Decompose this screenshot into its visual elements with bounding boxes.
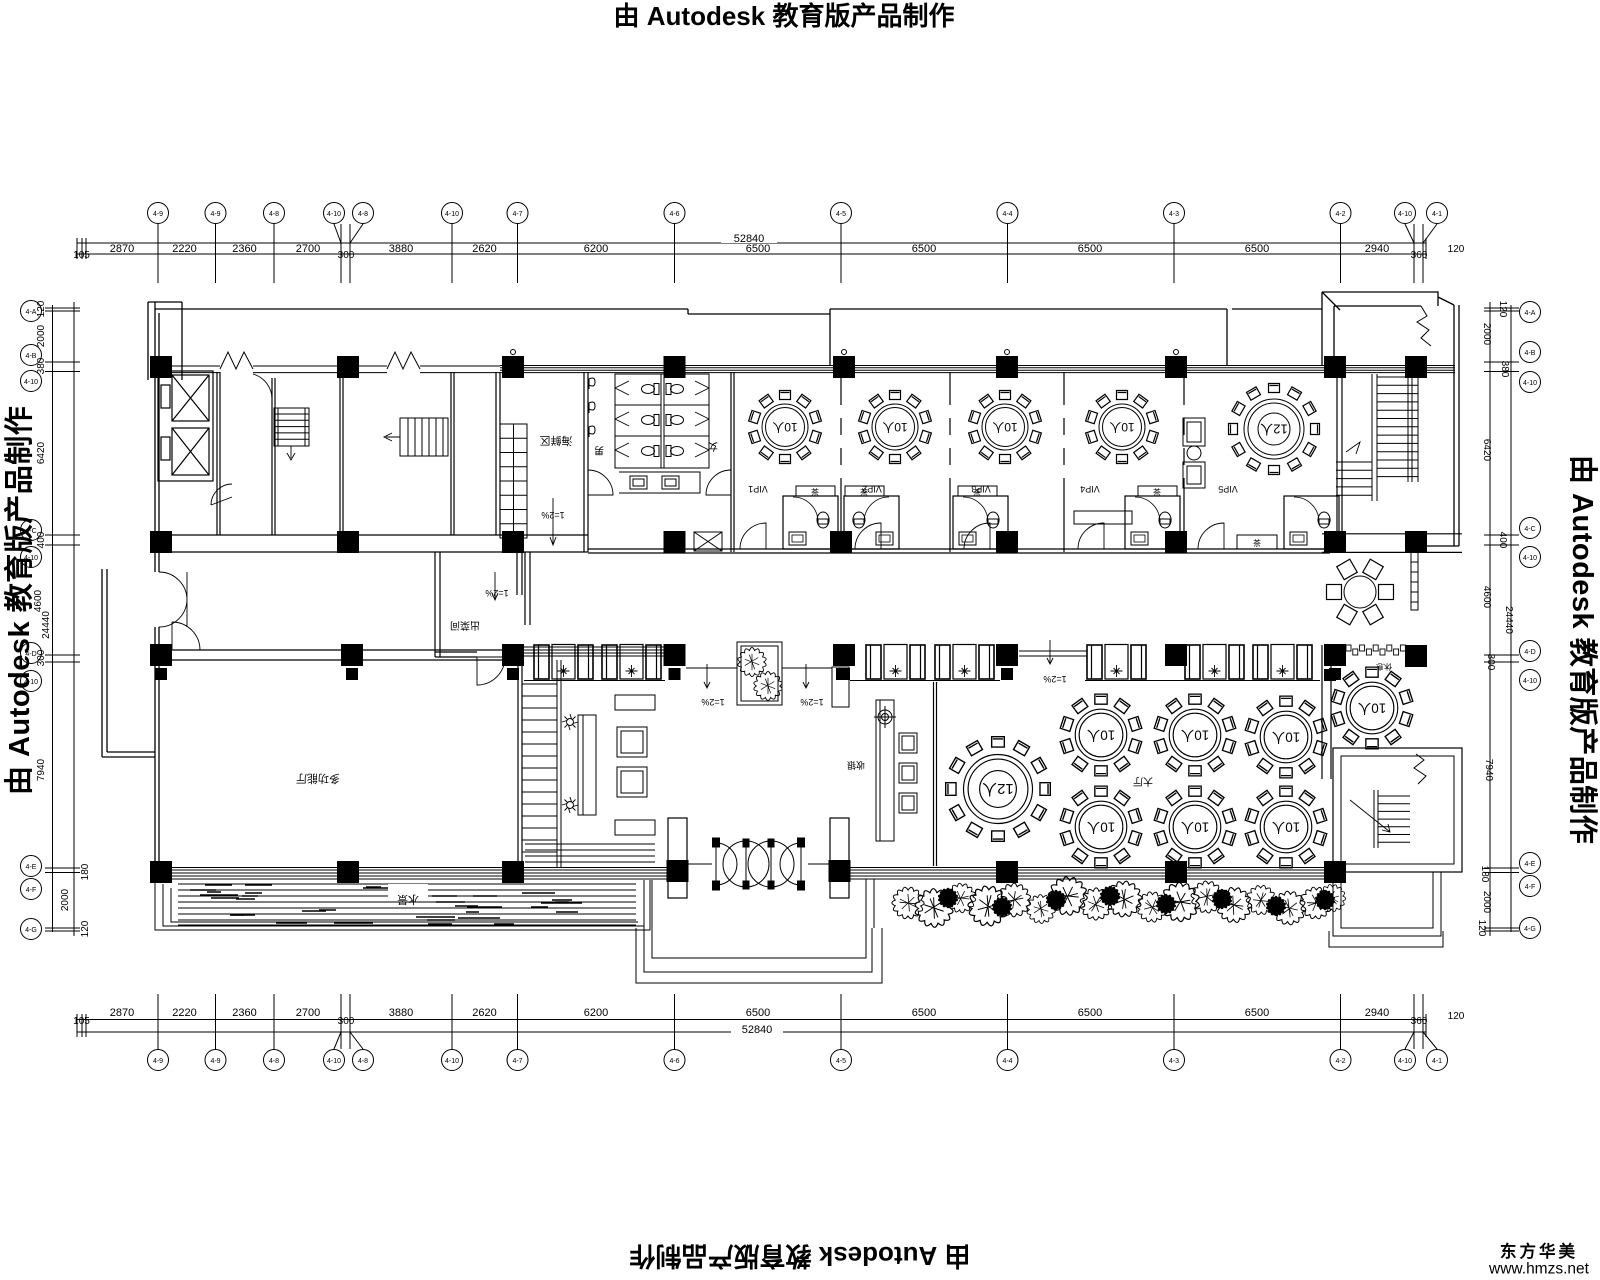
svg-text:www.hmzs.net: www.hmzs.net: [1488, 1261, 1590, 1278]
svg-text:4-10: 4-10: [24, 379, 38, 386]
svg-text:4-10: 4-10: [1523, 678, 1537, 685]
svg-text:24440: 24440: [41, 611, 52, 639]
svg-text:4-4: 4-4: [1002, 1058, 1012, 1065]
svg-text:6500: 6500: [912, 243, 936, 255]
svg-text:180: 180: [1479, 866, 1490, 883]
svg-text:4-3: 4-3: [1169, 211, 1179, 218]
svg-text:360: 360: [1411, 250, 1428, 261]
svg-text:2220: 2220: [172, 1007, 196, 1019]
svg-text:4-8: 4-8: [269, 1058, 279, 1065]
svg-text:4-5: 4-5: [836, 1058, 846, 1065]
svg-text:300: 300: [338, 1016, 355, 1027]
svg-text:4-10: 4-10: [327, 1058, 341, 1065]
svg-text:4-3: 4-3: [1169, 1058, 1179, 1065]
svg-text:由 Autodesk 教育版产品制作: 由 Autodesk 教育版产品制作: [630, 1241, 971, 1271]
svg-text:4-10: 4-10: [327, 211, 341, 218]
svg-text:2620: 2620: [472, 1007, 496, 1019]
svg-text:4-G: 4-G: [25, 927, 37, 934]
svg-text:4-1: 4-1: [1432, 1058, 1442, 1065]
svg-text:7940: 7940: [1483, 759, 1494, 782]
svg-text:4600: 4600: [1481, 586, 1492, 609]
svg-text:4-D: 4-D: [1524, 649, 1535, 656]
svg-text:120: 120: [1476, 920, 1487, 937]
svg-text:3880: 3880: [389, 1007, 413, 1019]
svg-text:180: 180: [80, 863, 91, 880]
svg-text:由 Autodesk 教育版产品制作: 由 Autodesk 教育版产品制作: [1566, 455, 1600, 844]
svg-text:4-8: 4-8: [358, 1058, 368, 1065]
svg-text:4-2: 4-2: [1335, 1058, 1345, 1065]
svg-text:6500: 6500: [1078, 243, 1102, 255]
svg-text:380: 380: [1499, 361, 1510, 378]
svg-text:2360: 2360: [232, 243, 256, 255]
svg-text:1=2%: 1=2%: [701, 697, 724, 707]
svg-text:2620: 2620: [472, 243, 496, 255]
svg-text:男: 男: [594, 444, 604, 456]
svg-text:4-B: 4-B: [26, 353, 37, 360]
svg-text:6420: 6420: [1481, 439, 1492, 462]
svg-text:由 Autodesk 教育版产品制作: 由 Autodesk 教育版产品制作: [614, 1, 955, 31]
svg-text:休息: 休息: [1376, 662, 1392, 672]
svg-text:105: 105: [73, 1016, 90, 1027]
svg-text:4-A: 4-A: [1525, 310, 1536, 317]
svg-text:4-10: 4-10: [1523, 555, 1537, 562]
svg-text:4-7: 4-7: [512, 211, 522, 218]
svg-text:茶: 茶: [1153, 487, 1161, 497]
svg-text:360: 360: [1411, 1016, 1428, 1027]
svg-text:4-10: 4-10: [24, 555, 38, 562]
svg-text:4-G: 4-G: [1524, 926, 1536, 933]
svg-text:4-E: 4-E: [26, 864, 37, 871]
svg-text:400: 400: [36, 531, 47, 548]
svg-text:4-F: 4-F: [26, 887, 37, 894]
svg-text:水景: 水景: [397, 893, 419, 906]
svg-text:6420: 6420: [36, 441, 47, 464]
svg-text:6500: 6500: [1078, 1007, 1102, 1019]
svg-text:4-9: 4-9: [153, 211, 163, 218]
svg-text:120: 120: [1497, 301, 1508, 318]
svg-text:VIP4: VIP4: [1080, 484, 1100, 494]
svg-text:收银: 收银: [847, 760, 865, 771]
svg-text:4-10: 4-10: [445, 211, 459, 218]
svg-text:6200: 6200: [584, 243, 608, 255]
svg-text:东方华美: 东方华美: [1500, 1241, 1578, 1261]
svg-text:4-C: 4-C: [1524, 526, 1535, 533]
svg-text:2940: 2940: [1365, 243, 1389, 255]
svg-text:7940: 7940: [36, 758, 47, 781]
svg-text:2870: 2870: [110, 1007, 134, 1019]
svg-text:4-6: 4-6: [669, 211, 679, 218]
svg-text:4-9: 4-9: [210, 211, 220, 218]
svg-text:120: 120: [1448, 244, 1465, 255]
svg-text:多功能厅: 多功能厅: [296, 772, 340, 786]
svg-text:4-5: 4-5: [836, 211, 846, 218]
svg-text:300: 300: [338, 250, 355, 261]
svg-text:茶: 茶: [1253, 538, 1261, 548]
svg-text:4-4: 4-4: [1002, 211, 1012, 218]
svg-text:2000: 2000: [36, 324, 47, 347]
svg-text:52840: 52840: [742, 1024, 773, 1036]
svg-text:4-1: 4-1: [1432, 211, 1442, 218]
svg-text:24440: 24440: [1503, 606, 1514, 634]
svg-text:4-10: 4-10: [1398, 211, 1412, 218]
svg-text:4-8: 4-8: [269, 211, 279, 218]
svg-text:4-C: 4-C: [25, 528, 36, 535]
svg-text:4-D: 4-D: [25, 651, 36, 658]
svg-text:4-10: 4-10: [24, 679, 38, 686]
svg-text:由 Autodesk 教育版产品制作: 由 Autodesk 教育版产品制作: [2, 406, 36, 795]
svg-text:4-A: 4-A: [26, 309, 37, 316]
svg-text:4-F: 4-F: [1525, 884, 1536, 891]
svg-text:120: 120: [80, 920, 91, 937]
svg-text:大厅: 大厅: [1133, 775, 1153, 788]
svg-text:6500: 6500: [1245, 1007, 1269, 1019]
svg-text:4-8: 4-8: [358, 211, 368, 218]
svg-text:2000: 2000: [60, 888, 71, 911]
svg-text:300: 300: [1485, 654, 1496, 671]
svg-text:茶: 茶: [973, 487, 981, 497]
svg-text:茶: 茶: [811, 487, 819, 497]
svg-text:400: 400: [1497, 532, 1508, 549]
svg-text:2870: 2870: [110, 243, 134, 255]
svg-text:6500: 6500: [912, 1007, 936, 1019]
svg-text:6500: 6500: [746, 243, 770, 255]
svg-text:茶: 茶: [860, 487, 868, 497]
svg-text:4-10: 4-10: [1523, 380, 1537, 387]
svg-text:4-E: 4-E: [1525, 861, 1536, 868]
svg-text:2940: 2940: [1365, 1007, 1389, 1019]
svg-text:380: 380: [36, 357, 47, 374]
svg-text:4600: 4600: [33, 589, 44, 612]
svg-text:4-10: 4-10: [445, 1058, 459, 1065]
svg-text:6500: 6500: [746, 1007, 770, 1019]
svg-text:女: 女: [708, 440, 718, 453]
svg-text:4-10: 4-10: [1398, 1058, 1412, 1065]
svg-text:1=2%: 1=2%: [541, 510, 564, 520]
svg-text:3880: 3880: [389, 243, 413, 255]
svg-text:VIP1: VIP1: [748, 484, 768, 494]
svg-text:2220: 2220: [172, 243, 196, 255]
svg-text:6500: 6500: [1245, 243, 1269, 255]
svg-text:VIP5: VIP5: [1218, 484, 1238, 494]
svg-text:120: 120: [1448, 1011, 1465, 1022]
svg-text:2000: 2000: [1481, 891, 1492, 914]
svg-text:4-9: 4-9: [153, 1058, 163, 1065]
svg-text:4-9: 4-9: [210, 1058, 220, 1065]
svg-text:4-B: 4-B: [1525, 350, 1536, 357]
svg-text:1=2%: 1=2%: [800, 697, 823, 707]
svg-text:4-7: 4-7: [512, 1058, 522, 1065]
svg-text:2000: 2000: [1481, 323, 1492, 346]
svg-text:2700: 2700: [296, 1007, 320, 1019]
svg-text:105: 105: [73, 250, 90, 261]
svg-text:1=2%: 1=2%: [485, 588, 508, 598]
svg-text:海鲜区: 海鲜区: [540, 434, 573, 448]
svg-text:2360: 2360: [232, 1007, 256, 1019]
svg-text:6200: 6200: [584, 1007, 608, 1019]
svg-text:4-2: 4-2: [1335, 211, 1345, 218]
svg-text:1=2%: 1=2%: [1043, 674, 1066, 684]
svg-text:2700: 2700: [296, 243, 320, 255]
svg-text:4-6: 4-6: [669, 1058, 679, 1065]
svg-text:出菜间: 出菜间: [450, 619, 480, 632]
